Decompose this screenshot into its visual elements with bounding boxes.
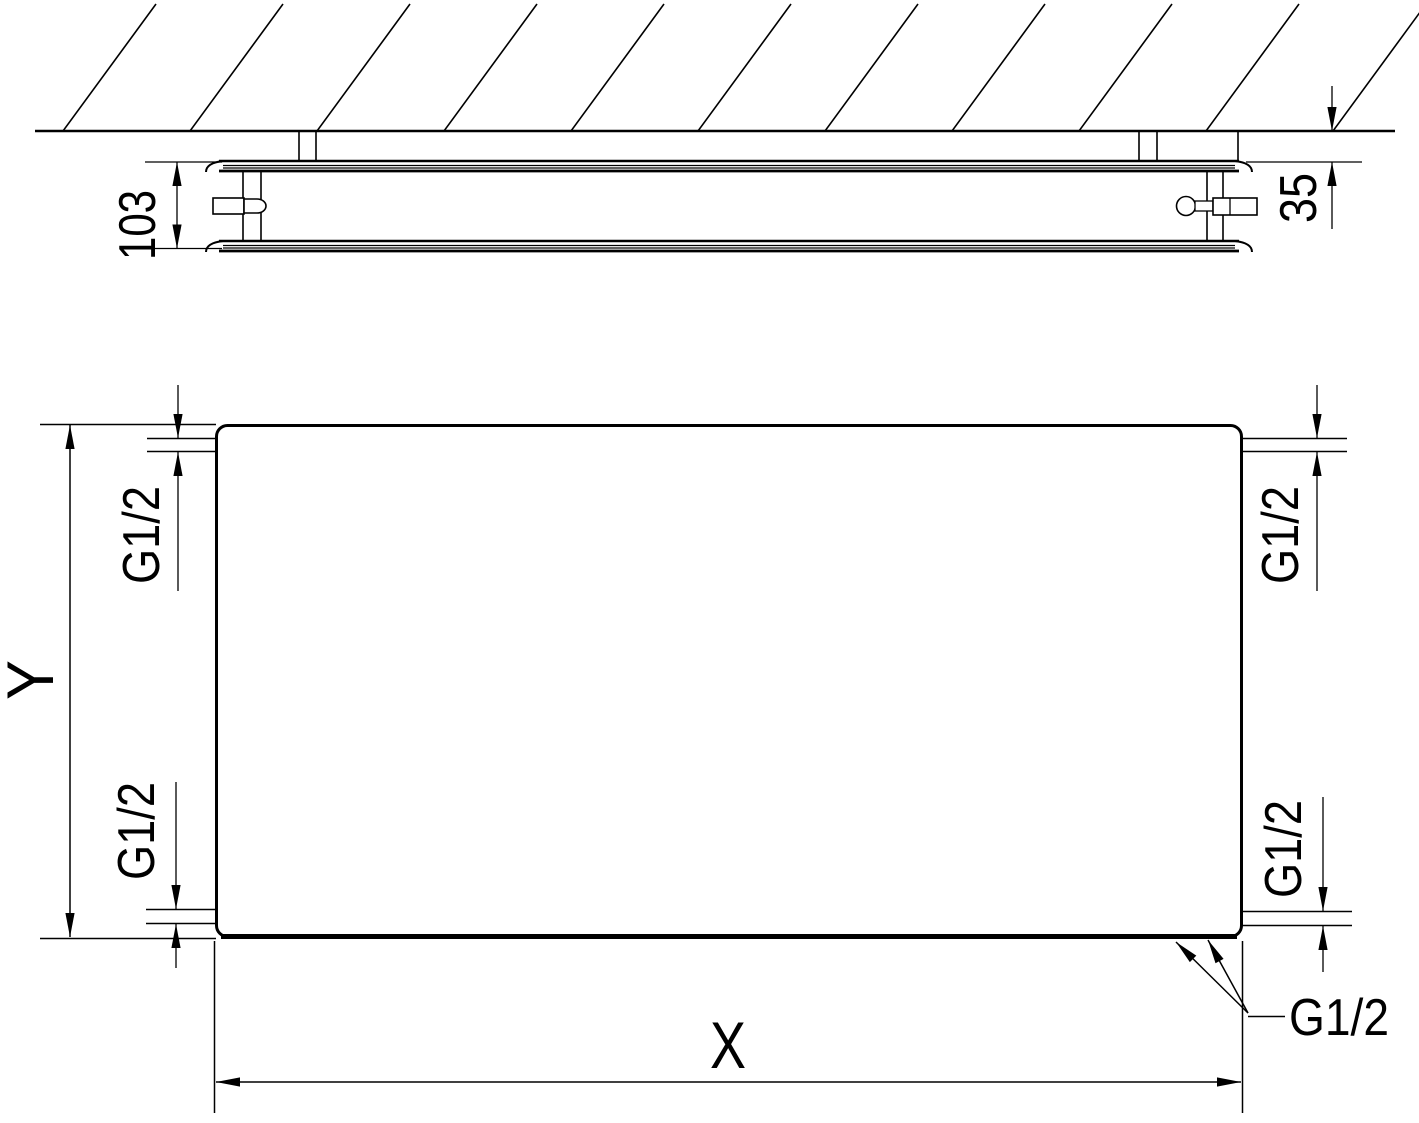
hatch-line	[952, 4, 1045, 131]
hatch-line	[444, 4, 537, 131]
valve-knob	[1177, 197, 1196, 216]
hatch-line	[825, 4, 918, 131]
left-valve	[213, 198, 266, 214]
port-bottom-right-label: G1/2	[1255, 800, 1313, 898]
radiator-front-panel	[206, 241, 1252, 252]
hatch-line	[63, 4, 156, 131]
port-stub-top-right	[1241, 439, 1347, 452]
radiator-top-view	[206, 132, 1257, 252]
wall-section	[35, 4, 1419, 131]
hatch-line	[1079, 4, 1172, 131]
right-valve	[1177, 197, 1258, 216]
hatch-line	[571, 4, 664, 131]
port-stub-top-left	[147, 439, 217, 452]
radiator-body	[217, 426, 1242, 937]
dim-wall-gap-label: 35	[1270, 173, 1328, 223]
port-callout-label: G1/2	[1289, 989, 1389, 1047]
right-wall-bracket	[1139, 132, 1238, 161]
hatch-line	[1206, 4, 1299, 131]
dim-width-label: X	[710, 1008, 746, 1082]
dim-depth-label: 103	[109, 190, 167, 260]
port-stub-bottom-left	[146, 910, 217, 924]
radiator-front-view	[146, 426, 1352, 937]
port-top-left-label: G1/2	[113, 486, 171, 584]
radiator-rear-panel	[206, 161, 1252, 172]
radiator-drawing: 103 35 G1/2	[0, 0, 1419, 1123]
technical-drawing-page: 103 35 G1/2	[0, 0, 1419, 1123]
port-stub-bottom-right	[1241, 912, 1352, 926]
callout-leader	[1176, 942, 1248, 1013]
left-wall-bracket	[299, 132, 316, 161]
wall-hatch	[63, 4, 1419, 131]
dim-height-label: Y	[0, 660, 67, 700]
port-bottom-left-label: G1/2	[108, 782, 166, 880]
hatch-line	[190, 4, 283, 131]
port-top-right-label: G1/2	[1252, 486, 1310, 584]
hatch-line	[698, 4, 791, 131]
hatch-line	[317, 4, 410, 131]
hatch-line	[1333, 4, 1419, 131]
port-callout	[1176, 940, 1285, 1017]
